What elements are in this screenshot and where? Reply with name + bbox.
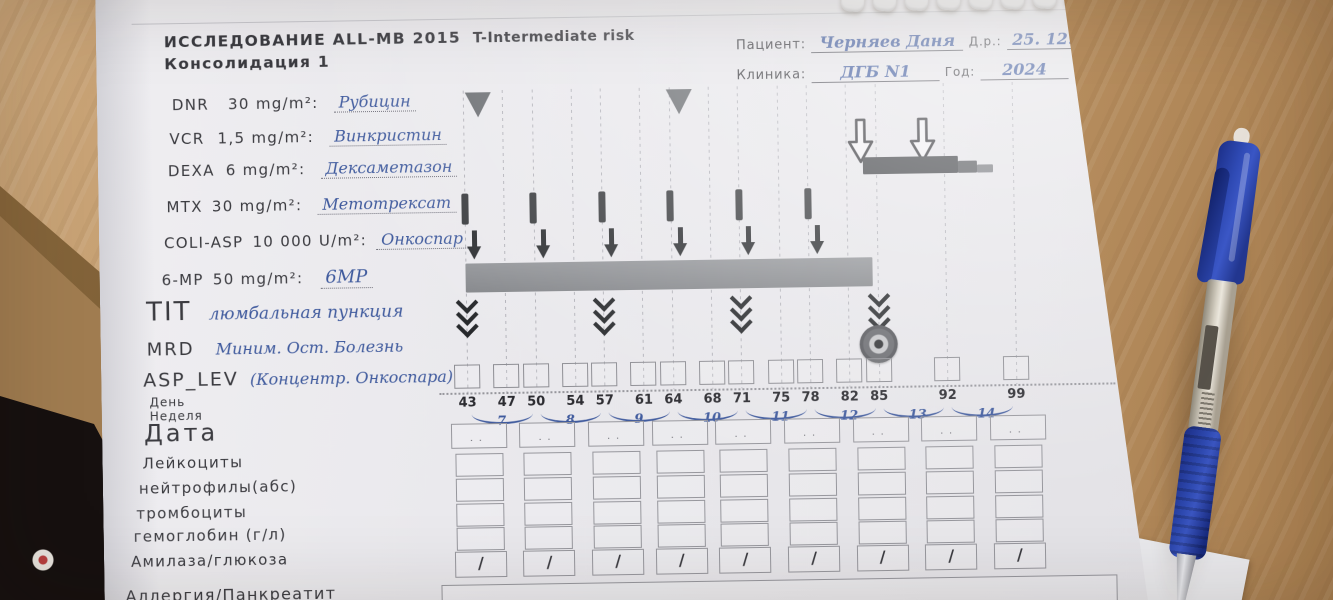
- asp-lev-checkbox: [768, 359, 794, 383]
- day-label: 99: [1007, 387, 1025, 402]
- drug-code: 6-MP: [161, 271, 203, 290]
- asp-lev-checkbox: [728, 360, 754, 384]
- lab-cell: [593, 501, 641, 525]
- dexa-bar-step: [977, 164, 993, 172]
- lab-cell: [926, 496, 974, 520]
- date-cell: ··: [921, 416, 977, 442]
- lab-cell: [858, 521, 906, 545]
- drug-dose: 6 mg/m²:: [226, 160, 306, 179]
- drug-dose: 30 mg/m²:: [228, 94, 319, 113]
- dexa-bar-step: [958, 161, 978, 173]
- amylase-cell: /: [788, 546, 840, 573]
- lab-row-label-neutrophils: нейтрофилы(абс): [139, 477, 297, 497]
- lab-cell: [456, 527, 504, 551]
- day-gridline: [943, 83, 949, 385]
- drug-dose: 1,5 mg/m²:: [217, 128, 314, 148]
- lab-row-label-platelets: тромбоциты: [136, 503, 247, 523]
- day-gridline: [502, 90, 508, 392]
- coli-asp-arrow-marker: [535, 229, 550, 258]
- lab-cell: [857, 447, 905, 471]
- lab-cell: [927, 520, 975, 544]
- lab-cell: [858, 497, 906, 521]
- mtx-tick-marker: [735, 189, 742, 220]
- asp-lev-checkbox: [866, 358, 892, 382]
- drug-code: DEXA: [168, 162, 215, 181]
- lab-cell: [721, 523, 769, 547]
- amylase-cell: /: [592, 549, 644, 576]
- study-title: ИССЛЕДОВАНИЕ ALL-MB 2015: [164, 29, 461, 52]
- binding-comb: [872, 0, 897, 12]
- pen-tip: [1166, 553, 1200, 600]
- procedure-name-handwritten: Миним. Ост. Болезнь: [216, 337, 404, 359]
- drug-row-6mp: 6-MP 50 mg/m²: 6МР: [161, 266, 372, 290]
- lab-cell: [656, 475, 704, 499]
- binding-comb: [840, 0, 865, 12]
- day-gridline: [1011, 82, 1017, 384]
- lab-cell: [456, 478, 504, 502]
- amylase-cell: /: [856, 545, 908, 572]
- procedure-code: TIT: [146, 297, 192, 328]
- day-label: 75: [772, 391, 790, 406]
- lab-cell: [857, 472, 905, 496]
- day-gridline: [776, 86, 782, 388]
- fabric-flower: [30, 548, 56, 572]
- lab-cell: [524, 477, 572, 501]
- clinic-handwritten: ДГБ N1: [811, 61, 939, 83]
- date-cell: ··: [990, 415, 1046, 441]
- lab-cell: [789, 498, 837, 522]
- lab-cell: [656, 450, 704, 474]
- date-cell: ··: [451, 423, 507, 449]
- binding-comb: [1000, 0, 1025, 10]
- drug-name-handwritten: Метотрексат: [317, 193, 456, 215]
- asp-lev-checkbox: [660, 361, 686, 385]
- drug-row-coli-asp: COLI-ASP 10 000 U/m²: Онкоспар: [164, 229, 468, 253]
- day-label: 61: [635, 393, 653, 408]
- mtx-tick-marker: [804, 188, 811, 219]
- day-label: 78: [801, 390, 819, 405]
- lab-cell: [657, 524, 705, 548]
- coli-asp-arrow-marker: [604, 228, 619, 257]
- date-cell: ··: [588, 421, 644, 447]
- drug-row-dnr: DNR 30 mg/m²: Рубицин: [172, 91, 416, 114]
- asp-lev-checkbox: [797, 359, 823, 383]
- amylase-cell: /: [523, 550, 575, 577]
- drug-name-handwritten: Винкристин: [329, 125, 447, 147]
- procedure-code: ASP_LEV: [143, 368, 239, 391]
- lab-cell: [524, 452, 572, 476]
- day-gridline: [570, 89, 576, 391]
- day-gridline: [639, 88, 645, 390]
- day-label: 85: [870, 389, 888, 404]
- tit-chevron-marker: [594, 296, 615, 332]
- lab-cell: [657, 500, 705, 524]
- day-axis-label: День: [149, 395, 185, 410]
- patient-name-handwritten: Черняев Даня: [811, 31, 963, 53]
- day-label: 68: [703, 392, 721, 407]
- date-cell: ··: [652, 420, 708, 446]
- lab-cell: [456, 503, 504, 527]
- day-label: 64: [664, 392, 682, 407]
- asp-lev-checkbox: [493, 364, 519, 388]
- day-label: 50: [527, 394, 545, 409]
- lab-cell: [720, 449, 768, 473]
- lab-row-label-date: Дата: [144, 419, 219, 448]
- mtx-tick-marker: [598, 191, 605, 222]
- coli-asp-arrow-marker: [467, 230, 482, 259]
- lab-cell: [995, 495, 1043, 519]
- asp-lev-checkbox: [836, 358, 862, 382]
- lab-cell: [594, 525, 642, 549]
- lab-cell: [592, 451, 640, 475]
- allergy-panel: [441, 574, 1118, 600]
- drug-row-dexa: DEXA 6 mg/m²: Дексаметазон: [168, 157, 458, 181]
- lab-cell: [994, 445, 1042, 469]
- amylase-cell: /: [925, 544, 977, 571]
- asp-lev-checkbox: [591, 362, 617, 386]
- amylase-cell: /: [455, 551, 507, 578]
- binding-comb: [904, 0, 929, 11]
- coli-asp-arrow-marker: [810, 225, 825, 254]
- asp-lev-checkbox: [523, 363, 549, 387]
- dnr-triangle-marker: [464, 92, 490, 117]
- asp-lev-checkbox: [630, 362, 656, 386]
- lab-row-label-hemoglobin: гемоглобин (г/л): [134, 525, 287, 545]
- date-cell: ··: [519, 422, 575, 448]
- lab-cell: [788, 448, 836, 472]
- asp-lev-checkbox: [699, 361, 725, 385]
- asp-lev-checkbox: [1003, 356, 1029, 380]
- mtx-tick-marker: [667, 190, 674, 221]
- six-mp-bar: [465, 257, 872, 292]
- procedure-row-mrd: MRD Миним. Ост. Болезнь: [147, 336, 404, 361]
- amylase-cell: /: [656, 548, 708, 575]
- asp-lev-checkbox: [934, 357, 960, 381]
- binding-comb: [936, 0, 961, 11]
- lab-row-label-allergy: Аллергия/Панкреатит: [125, 584, 336, 600]
- drug-dose: 10 000 U/m²:: [252, 231, 367, 251]
- clinic-line: Клиника: ДГБ N1 Год: 2024: [736, 59, 1068, 84]
- patient-label: Пациент:: [736, 37, 806, 53]
- lab-cell: [525, 502, 573, 526]
- tit-chevron-marker: [457, 298, 478, 334]
- year-handwritten: 2024: [980, 59, 1068, 80]
- lab-cell: [525, 526, 573, 550]
- day-label: 71: [733, 391, 751, 406]
- pen-ink-cartridge: [1197, 325, 1218, 390]
- lab-cell: [593, 476, 641, 500]
- coli-asp-arrow-marker: [741, 226, 756, 255]
- clinic-label: Клиника:: [736, 67, 806, 83]
- dnr-triangle-marker: [665, 89, 691, 114]
- date-cell: ··: [852, 417, 908, 443]
- asp-lev-checkbox: [454, 364, 480, 388]
- drug-code: MTX: [166, 198, 203, 217]
- drug-dose: 50 mg/m²:: [213, 269, 304, 288]
- drug-name-handwritten: Дексаметазон: [320, 157, 457, 179]
- mtx-tick-marker: [461, 194, 468, 225]
- drug-row-vcr: VCR 1,5 mg/m²: Винкристин: [169, 125, 447, 148]
- tit-chevron-marker: [869, 292, 890, 328]
- procedure-name-handwritten: (Концентр. Онкоспара): [250, 367, 454, 389]
- day-label: 54: [566, 394, 584, 409]
- asp-lev-checkbox: [562, 363, 588, 387]
- dexa-bar: [863, 156, 958, 174]
- year-label: Год:: [945, 65, 975, 79]
- risk-group-label: T-Intermediate risk: [473, 28, 635, 47]
- day-gridline: [708, 87, 714, 389]
- procedure-name-handwritten: люмбальная пункция: [209, 302, 404, 325]
- lab-cell: [926, 471, 974, 495]
- binding-comb: [1032, 0, 1057, 9]
- mtx-tick-marker: [529, 192, 536, 223]
- drug-dose: 30 mg/m²:: [212, 196, 303, 215]
- amylase-cell: /: [994, 543, 1046, 570]
- day-label: 92: [939, 388, 957, 403]
- protocol-sheet: ИССЛЕДОВАНИЕ ALL-MB 2015T-Intermediate r…: [95, 0, 1168, 600]
- day-label: 57: [596, 393, 614, 408]
- lab-row-label-amylase: Амилаза/глюкоза: [131, 550, 289, 570]
- lab-cell: [789, 473, 837, 497]
- pen-spring: [1197, 391, 1215, 430]
- sheet-top-rule: [132, 9, 1072, 25]
- pen-barrel: [1188, 279, 1238, 434]
- day-label: 47: [498, 395, 516, 410]
- drug-code: VCR: [169, 130, 204, 149]
- coli-asp-arrow-marker: [673, 227, 688, 256]
- lab-cell: [926, 446, 974, 470]
- photo-scene: ИССЛЕДОВАНИЕ ALL-MB 2015T-Intermediate r…: [0, 0, 1333, 600]
- lab-cell: [790, 522, 838, 546]
- drug-code: COLI-ASP: [164, 233, 244, 252]
- procedure-code: MRD: [147, 339, 195, 361]
- drug-name-handwritten: Онкоспар: [376, 229, 468, 250]
- lab-cell: [720, 474, 768, 498]
- procedure-row-tit: TIT люмбальная пункция: [146, 294, 404, 328]
- procedure-row-asp-lev: ASP_LEV (Концентр. Онкоспара): [143, 365, 453, 392]
- binding-comb: [968, 0, 993, 10]
- lab-cell: [995, 470, 1043, 494]
- tit-chevron-marker: [731, 294, 752, 330]
- drug-name-handwritten: Рубицин: [333, 91, 415, 112]
- lab-row-label-leukocytes: Лейкоциты: [142, 453, 243, 473]
- pen-grip: [1168, 425, 1222, 561]
- lab-cell: [721, 499, 769, 523]
- lab-cell: [995, 519, 1043, 543]
- date-cell: ··: [784, 418, 840, 444]
- drug-code: DNR: [172, 96, 209, 115]
- lab-cell: [455, 453, 503, 477]
- day-label: 43: [458, 395, 476, 410]
- study-header: ИССЛЕДОВАНИЕ ALL-MB 2015T-Intermediate r…: [164, 24, 635, 75]
- dob-label: Д.р.:: [969, 34, 1002, 49]
- day-label: 82: [841, 389, 859, 404]
- drug-row-mtx: MTX 30 mg/m²: Метотрексат: [166, 193, 456, 217]
- drug-name-handwritten: 6МР: [320, 266, 372, 289]
- amylase-cell: /: [719, 547, 771, 574]
- date-cell: ··: [715, 419, 771, 445]
